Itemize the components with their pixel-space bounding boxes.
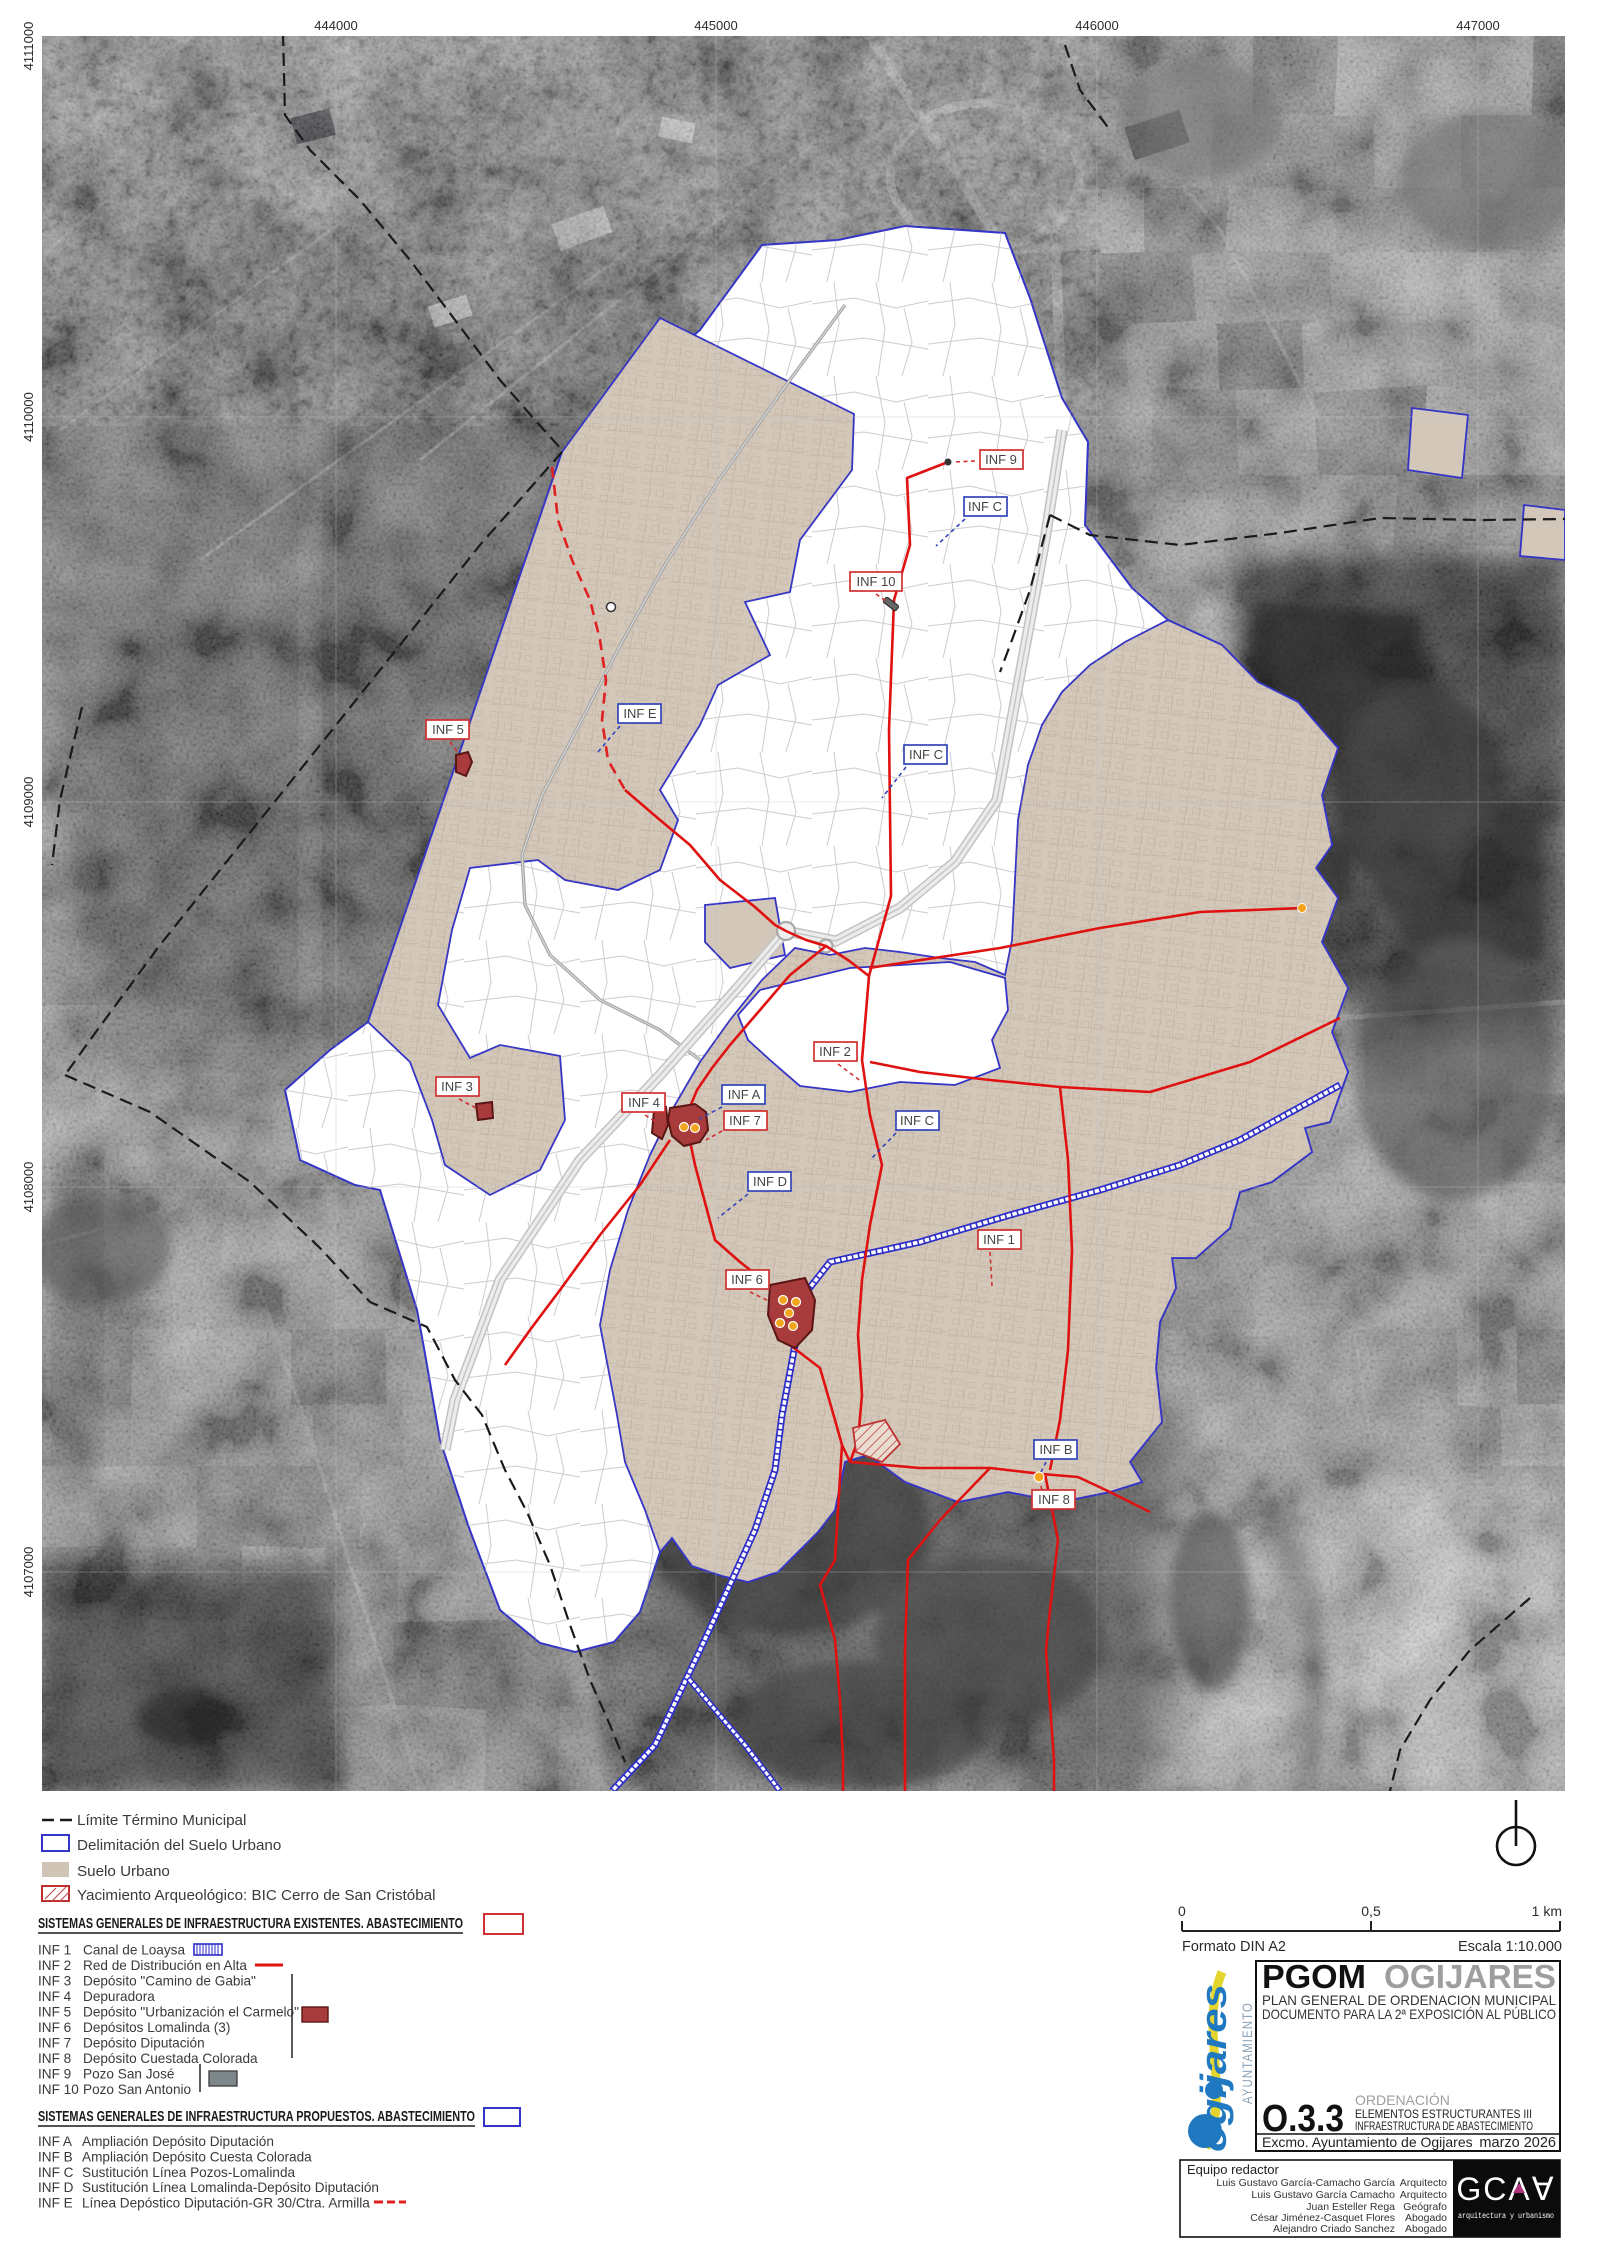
svg-text:Límite Término Municipal: Límite Término Municipal — [77, 1812, 246, 1829]
svg-text:INF C: INF C — [900, 1113, 934, 1128]
svg-text:Abogado: Abogado — [1405, 2223, 1447, 2235]
svg-text:INF E: INF E — [623, 706, 657, 721]
svg-text:446000: 446000 — [1075, 18, 1118, 33]
svg-text:4110000: 4110000 — [21, 392, 36, 442]
svg-text:INF B: INF B — [38, 2149, 73, 2164]
svg-text:INF 6: INF 6 — [38, 2020, 71, 2035]
svg-text:INF 3: INF 3 — [38, 1974, 71, 1989]
svg-text:SISTEMAS GENERALES DE INFRAEST: SISTEMAS GENERALES DE INFRAESTRUCTURA EX… — [38, 1915, 463, 1932]
svg-text:447000: 447000 — [1456, 18, 1499, 33]
svg-text:Pozo San José: Pozo San José — [83, 2067, 174, 2082]
svg-text:Luis Gustavo García-Camacho Ga: Luis Gustavo García-Camacho García — [1216, 2177, 1395, 2189]
svg-text:INF 2: INF 2 — [38, 1958, 71, 1973]
svg-text:INF 7: INF 7 — [729, 1113, 761, 1128]
svg-text:INF 8: INF 8 — [38, 2051, 71, 2066]
svg-text:Yacimiento Arqueológico: BIC C: Yacimiento Arqueológico: BIC Cerro de Sa… — [77, 1887, 436, 1904]
svg-text:OGIJARES: OGIJARES — [1384, 1958, 1556, 1995]
svg-text:Depósito Cuestada Colorada: Depósito Cuestada Colorada — [83, 2051, 258, 2066]
svg-text:INF B: INF B — [1039, 1442, 1072, 1457]
svg-text:Pozo San Antonio: Pozo San Antonio — [83, 2082, 191, 2097]
svg-text:INF 10: INF 10 — [856, 574, 895, 589]
svg-text:445000: 445000 — [694, 18, 737, 33]
svg-text:INF A: INF A — [38, 2134, 73, 2149]
svg-text:INF 2: INF 2 — [819, 1044, 851, 1059]
svg-text:INF 4: INF 4 — [628, 1095, 660, 1110]
svg-text:Ampliación Depósito Diputación: Ampliación Depósito Diputación — [82, 2134, 274, 2149]
svg-text:INF A: INF A — [728, 1087, 761, 1102]
svg-text:Excmo. Ayuntamiento de Ogijare: Excmo. Ayuntamiento de Ogijares — [1262, 2134, 1473, 2150]
svg-text:444000: 444000 — [314, 18, 357, 33]
svg-text:Depuradora: Depuradora — [83, 1989, 155, 2004]
svg-text:arquitectura y urbanismo: arquitectura y urbanismo — [1458, 2212, 1554, 2221]
svg-text:Suelo Urbano: Suelo Urbano — [77, 1863, 170, 1880]
svg-text:DOCUMENTO PARA LA 2ª EXPOSICIÓ: DOCUMENTO PARA LA 2ª EXPOSICIÓN AL PÚBLI… — [1262, 2006, 1556, 2022]
svg-text:INF 9: INF 9 — [985, 452, 1017, 467]
svg-text:INF 8: INF 8 — [1038, 1492, 1070, 1507]
svg-text:INF C: INF C — [38, 2165, 74, 2180]
svg-text:Depósito "Urbanización el Carm: Depósito "Urbanización el Carmelo" — [83, 2005, 299, 2020]
svg-text:INF D: INF D — [753, 1174, 787, 1189]
svg-text:INF 9: INF 9 — [38, 2067, 71, 2082]
svg-text:Arquitecto: Arquitecto — [1400, 2177, 1447, 2189]
svg-text:Sustitución Línea Pozos-Lomali: Sustitución Línea Pozos-Lomalinda — [82, 2165, 296, 2180]
svg-text:ORDENACIÓN: ORDENACIÓN — [1355, 2092, 1450, 2108]
svg-text:SISTEMAS GENERALES DE INFRAEST: SISTEMAS GENERALES DE INFRAESTRUCTURA PR… — [38, 2108, 475, 2125]
svg-text:INF E: INF E — [38, 2196, 73, 2211]
svg-text:INF 6: INF 6 — [731, 1272, 763, 1287]
svg-text:INF 4: INF 4 — [38, 1989, 72, 2004]
svg-text:Depósito Diputación: Depósito Diputación — [83, 2036, 205, 2051]
svg-text:Canal de Loaysa: Canal de Loaysa — [83, 1943, 185, 1958]
svg-text:INF 7: INF 7 — [38, 2036, 71, 2051]
svg-text:0: 0 — [1178, 1903, 1186, 1919]
svg-text:Delimitación del Suelo Urbano: Delimitación del Suelo Urbano — [77, 1837, 281, 1854]
svg-text:INF 5: INF 5 — [432, 722, 464, 737]
svg-text:ogijares: ogijares — [1193, 1984, 1234, 2152]
svg-text:PGOM: PGOM — [1262, 1958, 1366, 1995]
svg-text:Ampliación Depósito Cuesta Col: Ampliación Depósito Cuesta Colorada — [82, 2149, 312, 2164]
svg-text:1 km: 1 km — [1532, 1903, 1562, 1919]
svg-text:4111000: 4111000 — [21, 22, 36, 71]
svg-text:INF 5: INF 5 — [38, 2005, 71, 2020]
svg-text:0,5: 0,5 — [1361, 1903, 1381, 1919]
svg-text:Depósito "Camino de Gabia": Depósito "Camino de Gabia" — [83, 1974, 256, 1989]
svg-text:Luis Gustavo García Camacho: Luis Gustavo García Camacho — [1251, 2189, 1395, 2201]
svg-text:INF C: INF C — [968, 499, 1002, 514]
svg-text:Depósitos Lomalinda (3): Depósitos Lomalinda (3) — [83, 2020, 230, 2035]
svg-text:marzo 2026: marzo 2026 — [1479, 2135, 1556, 2151]
svg-text:INF 10: INF 10 — [38, 2082, 79, 2097]
svg-text:Equipo redactor: Equipo redactor — [1187, 2162, 1279, 2177]
svg-text:PLAN GENERAL DE ORDENACION MUN: PLAN GENERAL DE ORDENACION MUNICIPAL — [1262, 1993, 1556, 2008]
svg-text:INF 3: INF 3 — [441, 1079, 473, 1094]
svg-text:INFRAESTRUCTURA DE ABASTECIMIE: INFRAESTRUCTURA DE ABASTECIMIENTO — [1355, 2119, 1533, 2133]
svg-text:Alejandro Criado Sanchez: Alejandro Criado Sanchez — [1273, 2223, 1395, 2235]
svg-text:Sustitución Línea Lomalinda-De: Sustitución Línea Lomalinda-Depósito Dip… — [82, 2180, 379, 2195]
svg-text:INF 1: INF 1 — [983, 1232, 1015, 1247]
svg-text:4109000: 4109000 — [21, 777, 36, 828]
svg-text:Arquitecto: Arquitecto — [1400, 2189, 1447, 2201]
svg-text:AYUNTAMIENTO: AYUNTAMIENTO — [1239, 2002, 1255, 2104]
svg-text:4107000: 4107000 — [21, 1547, 36, 1598]
svg-text:Línea Depóstico Diputación-GR: Línea Depóstico Diputación-GR 30/Ctra. A… — [82, 2196, 370, 2211]
svg-text:INF C: INF C — [909, 747, 943, 762]
svg-text:4108000: 4108000 — [21, 1162, 36, 1213]
svg-text:INF D: INF D — [38, 2180, 74, 2195]
svg-text:INF 1: INF 1 — [38, 1943, 71, 1958]
svg-text:GCΛ∀: GCΛ∀ — [1456, 2171, 1555, 2207]
svg-text:Formato DIN A2: Formato DIN A2 — [1182, 1939, 1286, 1955]
svg-text:Escala 1:10.000: Escala 1:10.000 — [1458, 1939, 1562, 1955]
svg-text:Red de Distribución en Alta: Red de Distribución en Alta — [83, 1958, 247, 1973]
